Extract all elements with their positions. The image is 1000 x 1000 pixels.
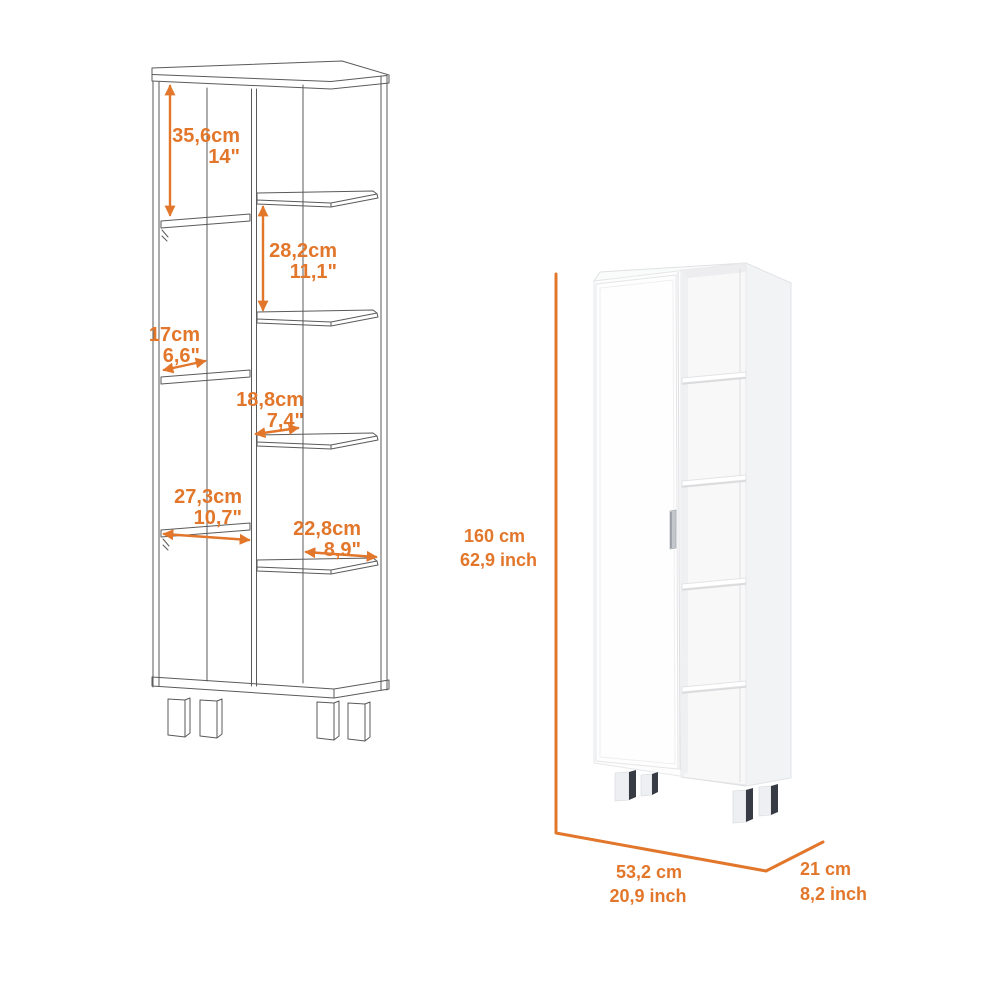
leg-front-right-side	[746, 788, 753, 822]
leg-front-right	[733, 790, 746, 823]
label-width-inch: 20,9 inch	[609, 886, 686, 906]
label-shelf-gap-right-inch: 11,1"	[290, 261, 337, 283]
product-dimension-diagram: 35,6cm 14" 28,2cm 11,1" 17cm 6,6" 18,8cm…	[0, 0, 1000, 1000]
leg-front-left	[615, 772, 629, 801]
label-right-shelf-depth-cm: 18,8cm	[236, 389, 304, 411]
leg-front-left-side	[629, 770, 636, 800]
label-right-shelf-depth-inch: 7,4"	[267, 410, 304, 432]
label-left-width-inch: 10,7"	[194, 507, 242, 529]
leg-back-right	[759, 786, 771, 816]
wireframe-legs	[168, 698, 370, 741]
label-depth-cm: 21 cm	[800, 859, 851, 879]
wireframe-structure	[153, 76, 387, 690]
label-height-cm: 160 cm	[464, 526, 525, 546]
wireframe-view: 35,6cm 14" 28,2cm 11,1" 17cm 6,6" 18,8cm…	[149, 61, 389, 741]
leg-back-right-side	[771, 784, 778, 815]
label-shelf-gap-right-cm: 28,2cm	[269, 240, 337, 262]
leg-back-left	[641, 774, 652, 796]
label-shelf-gap-top-cm: 35,6cm	[172, 125, 240, 147]
cabinet-door	[596, 275, 678, 769]
door-handle	[670, 510, 676, 549]
label-depth-inch: 8,2 inch	[800, 884, 867, 904]
label-left-shelf-depth-cm: 17cm	[149, 324, 200, 346]
shelf-unit-interior	[681, 264, 746, 785]
wireframe-base	[152, 677, 389, 698]
label-left-shelf-depth-inch: 6,6"	[163, 345, 200, 367]
label-right-width-inch: 8,9"	[324, 539, 361, 561]
wireframe-dimension-labels: 35,6cm 14" 28,2cm 11,1" 17cm 6,6" 18,8cm…	[149, 125, 361, 561]
leg-back-left-side	[652, 772, 658, 795]
render-view: 160 cm 62,9 inch 53,2 cm 20,9 inch 21 cm…	[460, 263, 867, 906]
diagram-canvas: 35,6cm 14" 28,2cm 11,1" 17cm 6,6" 18,8cm…	[0, 0, 1000, 1000]
interior-left-wall	[681, 270, 688, 777]
wireframe-top-slab	[152, 61, 389, 89]
label-right-width-cm: 22,8cm	[293, 518, 361, 540]
label-height-inch: 62,9 inch	[460, 550, 537, 570]
label-shelf-gap-top-inch: 14"	[208, 146, 240, 168]
label-left-width-cm: 27,3cm	[174, 486, 242, 508]
label-width-cm: 53,2 cm	[616, 862, 682, 882]
cabinet-side-panel	[746, 263, 791, 786]
